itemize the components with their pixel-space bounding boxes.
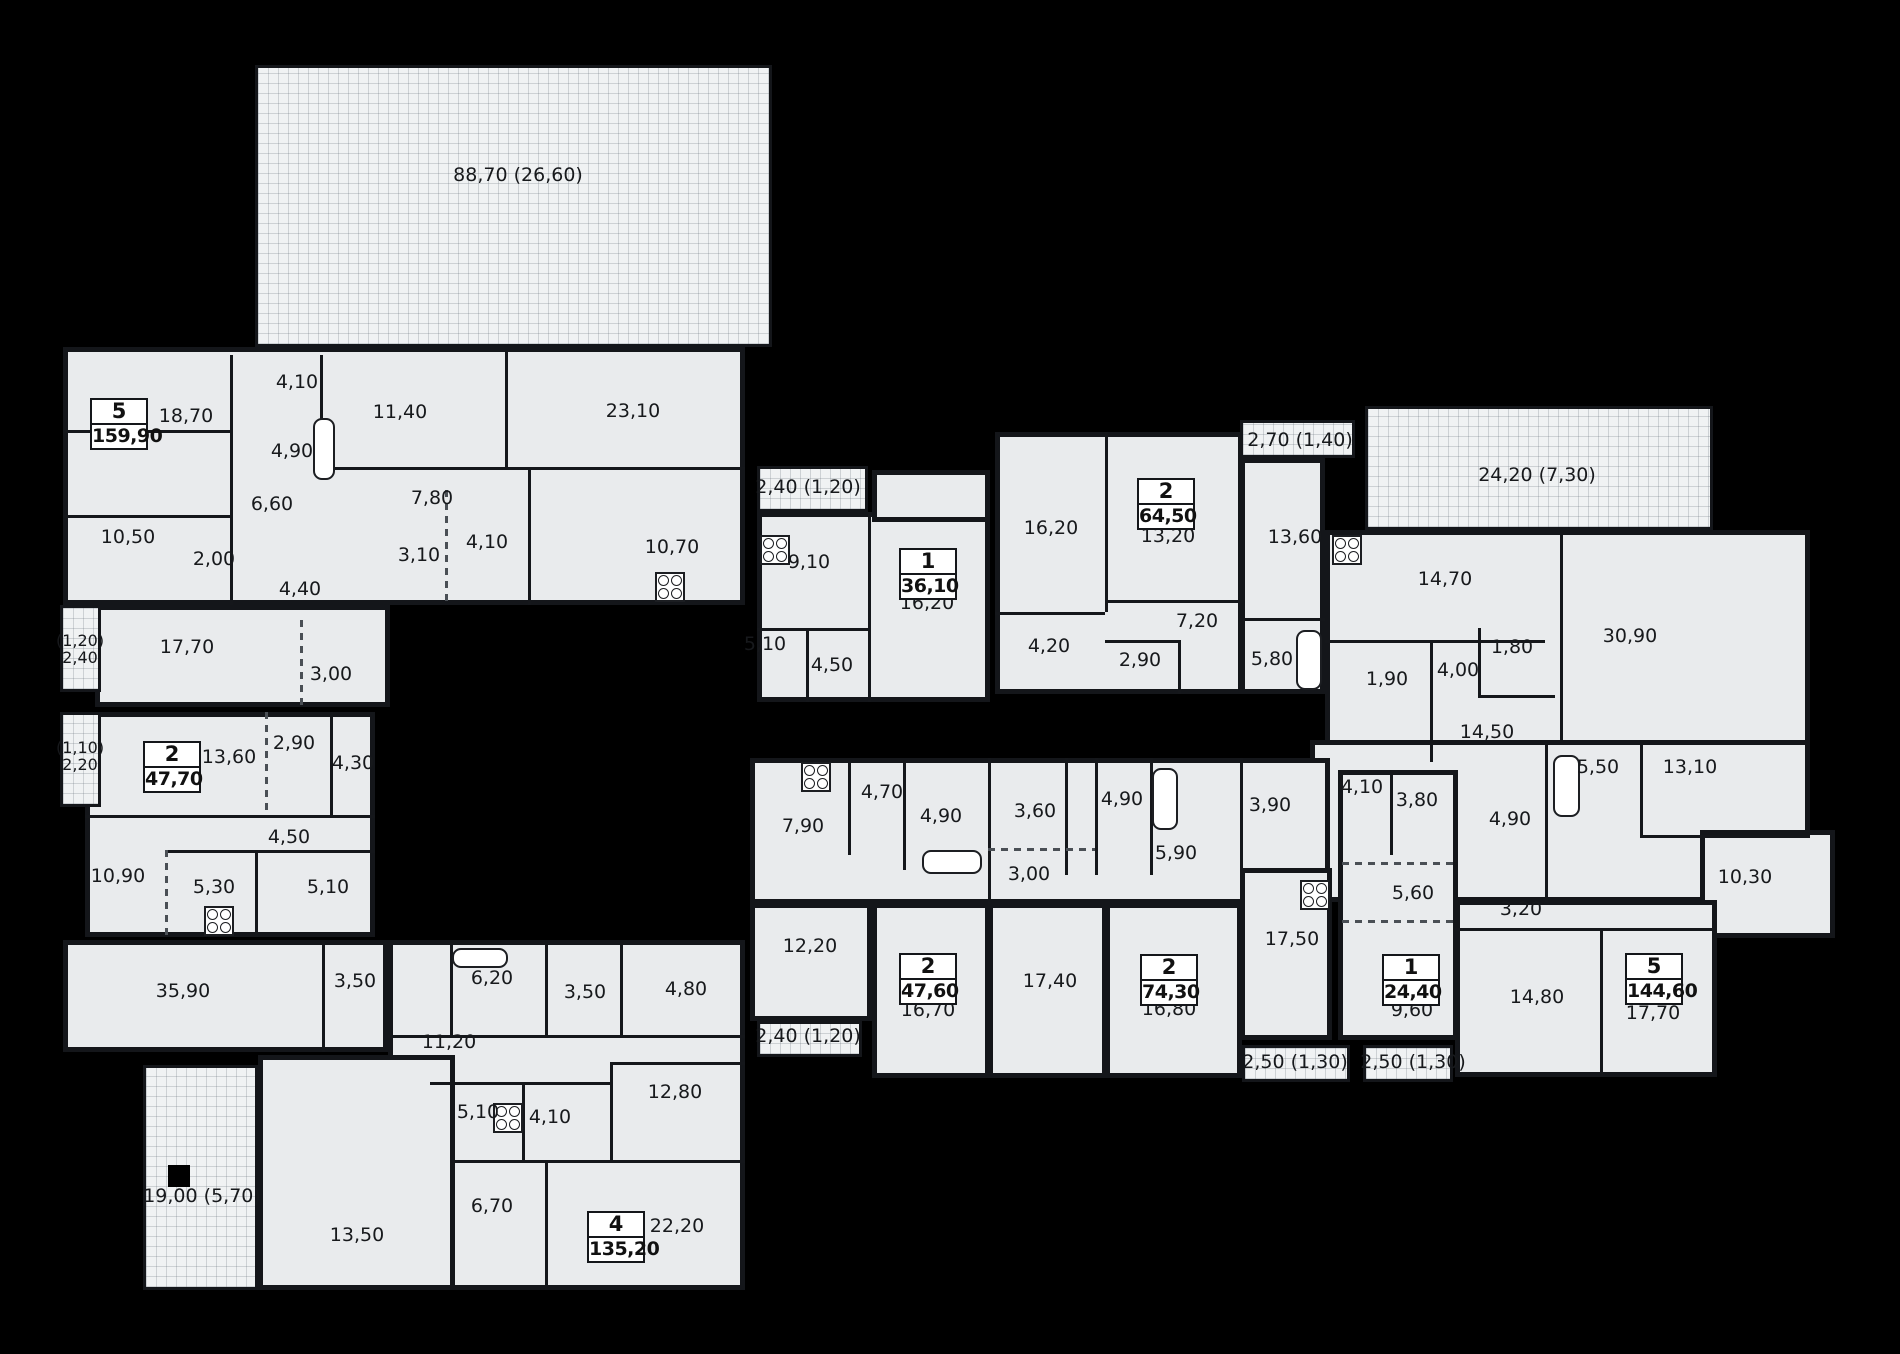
wall-segment xyxy=(505,350,508,467)
floor-block xyxy=(95,605,390,707)
bathtub-icon xyxy=(922,850,982,874)
bathtub-icon xyxy=(1152,768,1178,830)
stove-icon xyxy=(204,906,234,936)
apartment-rooms-count: 2 xyxy=(1139,480,1193,505)
room-area-label: 7,80 xyxy=(411,489,453,509)
room-area-label: 5,60 xyxy=(1392,884,1434,904)
room-area-label: 13,50 xyxy=(330,1226,384,1246)
apartment-type-badge: 247,70 xyxy=(143,741,201,793)
apartment-type-badge: 124,40 xyxy=(1382,954,1440,1006)
apartment-total-area: 36,10 xyxy=(901,575,955,598)
floor-plan: 5159,90136,10264,50247,70247,60274,30124… xyxy=(0,0,1900,1354)
stove-icon xyxy=(760,535,790,565)
room-area-label: 11,20 xyxy=(422,1033,476,1053)
bathtub-icon xyxy=(313,418,335,480)
wall-segment xyxy=(1105,432,1108,612)
room-area-label: 10,30 xyxy=(1718,868,1772,888)
wall-segment xyxy=(848,762,851,855)
terrace-area-label: 24,20 (7,30) xyxy=(1478,466,1596,486)
apartment-type-badge: 4135,20 xyxy=(587,1211,645,1263)
wall-segment xyxy=(165,850,375,853)
apartment-rooms-count: 1 xyxy=(901,550,955,575)
terrace-area-label: (1,10)2,20 xyxy=(56,740,104,774)
room-area-label: 30,90 xyxy=(1603,627,1657,647)
room-area-label: 17,70 xyxy=(160,638,214,658)
terrace-area-label: 88,70 (26,60) xyxy=(453,166,583,186)
room-area-label: 22,20 xyxy=(650,1217,704,1237)
room-area-label: 13,60 xyxy=(202,748,256,768)
room-area-label: 17,70 xyxy=(1626,1004,1680,1024)
wall-segment xyxy=(1240,758,1243,870)
wall-segment xyxy=(545,1160,548,1290)
wall-segment xyxy=(806,628,809,702)
wall-segment xyxy=(995,612,1105,615)
room-area-label: 4,90 xyxy=(1101,790,1143,810)
room-area-label: 6,20 xyxy=(471,969,513,989)
wall-segment xyxy=(988,758,991,904)
room-area-label: 10,70 xyxy=(645,538,699,558)
partition-dashed xyxy=(1342,920,1454,923)
room-area-label: 2,90 xyxy=(1119,651,1161,671)
room-area-label: 16,20 xyxy=(1024,519,1078,539)
apartment-total-area: 47,60 xyxy=(901,980,955,1003)
room-area-label: 14,50 xyxy=(1460,723,1514,743)
room-area-label: 4,70 xyxy=(861,783,903,803)
apartment-rooms-count: 2 xyxy=(901,955,955,980)
apartment-total-area: 47,70 xyxy=(145,768,199,791)
apartment-total-area: 144,60 xyxy=(1627,980,1681,1003)
room-area-label: 35,90 xyxy=(156,982,210,1002)
room-area-label: 4,90 xyxy=(920,807,962,827)
apartment-type-badge: 5144,60 xyxy=(1625,953,1683,1005)
room-area-label: 11,40 xyxy=(373,403,427,423)
room-area-label: 4,40 xyxy=(279,580,321,600)
terrace-area-label: 2,40 (1,20) xyxy=(755,478,860,498)
partition-dashed xyxy=(988,848,1095,851)
room-area-label: 17,40 xyxy=(1023,972,1077,992)
wall-segment xyxy=(85,815,375,818)
room-area-label: 7,90 xyxy=(782,817,824,837)
room-area-label: 4,00 xyxy=(1437,661,1479,681)
wall-segment xyxy=(322,467,745,470)
apartment-rooms-count: 4 xyxy=(589,1213,643,1238)
wall-segment xyxy=(1065,758,1068,875)
stove-icon xyxy=(1332,535,1362,565)
apartment-type-badge: 274,30 xyxy=(1140,954,1198,1006)
room-area-label: 4,10 xyxy=(1341,778,1383,798)
room-area-label: 4,10 xyxy=(466,533,508,553)
room-area-label: 3,60 xyxy=(1014,802,1056,822)
apartment-total-area: 64,50 xyxy=(1139,505,1193,528)
room-area-label: 13,20 xyxy=(1141,527,1195,547)
apartment-rooms-count: 2 xyxy=(1142,956,1196,981)
wall-segment xyxy=(610,1062,613,1162)
terrace-area-label: (1,20)2,40 xyxy=(56,633,104,667)
room-area-label: 4,50 xyxy=(268,828,310,848)
wall-segment xyxy=(868,512,871,702)
room-area-label: 12,20 xyxy=(783,937,837,957)
room-area-label: 3,90 xyxy=(1249,796,1291,816)
terrace-area-label: 2,50 (1,30) xyxy=(1242,1053,1347,1073)
apartment-rooms-count: 5 xyxy=(92,400,146,425)
wall-segment xyxy=(528,467,531,605)
room-area-label: 7,20 xyxy=(1176,612,1218,632)
room-area-label: 3,10 xyxy=(398,546,440,566)
wall-segment xyxy=(322,940,325,1052)
floor-block xyxy=(63,347,745,605)
room-area-label: 5,10 xyxy=(457,1103,499,1123)
room-area-label: 4,90 xyxy=(271,442,313,462)
floor-block xyxy=(872,470,990,522)
room-area-label: 5,30 xyxy=(193,878,235,898)
wall-segment xyxy=(255,850,258,937)
terrace-area xyxy=(255,65,772,347)
partition-dashed xyxy=(300,620,303,707)
wall-segment xyxy=(1105,600,1243,603)
floor-block xyxy=(750,903,872,1021)
wall-segment xyxy=(1560,530,1563,740)
apartment-type-badge: 264,50 xyxy=(1137,478,1195,530)
apartment-total-area: 159,90 xyxy=(92,425,146,448)
stove-icon xyxy=(655,572,685,602)
room-area-label: 4,20 xyxy=(1028,637,1070,657)
room-area-label: 3,20 xyxy=(1500,900,1542,920)
floor-block xyxy=(757,512,990,702)
wall-segment xyxy=(1545,740,1548,902)
room-area-label: 3,50 xyxy=(334,972,376,992)
room-area-label: 3,50 xyxy=(564,983,606,1003)
bathtub-icon xyxy=(452,948,508,968)
wall-segment xyxy=(455,1160,745,1163)
floor-block xyxy=(1325,530,1810,762)
room-area-label: 3,00 xyxy=(310,665,352,685)
wall-segment xyxy=(545,945,548,1037)
apartment-rooms-count: 1 xyxy=(1384,956,1438,981)
wall-segment xyxy=(1178,640,1181,694)
partition-dashed xyxy=(165,850,168,937)
apartment-rooms-count: 2 xyxy=(145,743,199,768)
wall-segment xyxy=(620,945,623,1037)
wall-segment xyxy=(430,1082,610,1085)
apartment-total-area: 74,30 xyxy=(1142,981,1196,1004)
wall-segment xyxy=(63,515,230,518)
wall-segment xyxy=(610,1062,745,1065)
stove-icon xyxy=(1300,880,1330,910)
room-area-label: 17,50 xyxy=(1265,930,1319,950)
room-area-label: 4,50 xyxy=(811,656,853,676)
wall-segment xyxy=(1430,640,1433,762)
room-area-label: 4,80 xyxy=(665,980,707,1000)
room-area-label: 2,00 xyxy=(193,550,235,570)
terrace-area-label: 19,00 (5,70) xyxy=(143,1187,261,1207)
partition-dashed xyxy=(265,712,268,815)
bathtub-icon xyxy=(1296,630,1322,690)
terrace-area-label: 2,50 (1,30) xyxy=(1360,1053,1465,1073)
apartment-type-badge: 5159,90 xyxy=(90,398,148,450)
room-area-label: 1,80 xyxy=(1491,638,1533,658)
wall-segment xyxy=(1105,640,1178,643)
room-area-label: 12,80 xyxy=(648,1083,702,1103)
wall-segment xyxy=(1243,618,1325,621)
floor-block xyxy=(258,1055,455,1290)
stove-icon xyxy=(801,762,831,792)
wall-segment xyxy=(757,628,870,631)
room-area-label: 5,10 xyxy=(307,878,349,898)
room-area-label: 5,50 xyxy=(1577,758,1619,778)
room-area-label: 14,70 xyxy=(1418,570,1472,590)
room-area-label: 14,80 xyxy=(1510,988,1564,1008)
room-area-label: 5,90 xyxy=(1155,844,1197,864)
room-area-label: 13,60 xyxy=(1268,528,1322,548)
room-area-label: 10,90 xyxy=(91,867,145,887)
room-area-label: 1,90 xyxy=(1366,670,1408,690)
apartment-rooms-count: 5 xyxy=(1627,955,1681,980)
terrace-area-label: 2,40 (1,20) xyxy=(755,1027,860,1047)
room-area-label: 3,00 xyxy=(1008,865,1050,885)
apartment-type-badge: 247,60 xyxy=(899,953,957,1005)
room-area-label: 3,80 xyxy=(1396,791,1438,811)
room-area-label: 6,70 xyxy=(471,1197,513,1217)
wall-segment xyxy=(1640,740,1643,835)
room-area-label: 2,90 xyxy=(273,734,315,754)
room-area-label: 4,90 xyxy=(1489,810,1531,830)
apartment-total-area: 135,20 xyxy=(589,1238,643,1261)
wall-segment xyxy=(903,762,906,870)
room-area-label: 13,10 xyxy=(1663,758,1717,778)
room-area-label: 5,10 xyxy=(744,635,786,655)
room-area-label: 18,70 xyxy=(159,407,213,427)
terrace-area-label: 2,70 (1,40) xyxy=(1247,431,1352,451)
wall-segment xyxy=(1478,695,1555,698)
room-area-label: 4,10 xyxy=(529,1108,571,1128)
wall-segment xyxy=(1600,928,1603,1077)
room-area-label: 4,10 xyxy=(276,373,318,393)
room-area-label: 4,30 xyxy=(332,754,374,774)
apartment-total-area: 24,40 xyxy=(1384,981,1438,1004)
room-area-label: 9,10 xyxy=(788,553,830,573)
room-area-label: 10,50 xyxy=(101,528,155,548)
wall-segment xyxy=(1455,928,1717,931)
floor-block xyxy=(63,940,388,1052)
room-area-label: 5,80 xyxy=(1251,650,1293,670)
apartment-type-badge: 136,10 xyxy=(899,548,957,600)
fireplace-icon xyxy=(168,1165,190,1187)
wall-segment xyxy=(1640,835,1810,838)
room-area-label: 6,60 xyxy=(251,495,293,515)
room-area-label: 23,10 xyxy=(606,402,660,422)
partition-dashed xyxy=(1342,862,1454,865)
wall-segment xyxy=(1095,758,1098,875)
wall-segment xyxy=(1390,775,1393,855)
terrace-area xyxy=(143,1065,258,1290)
